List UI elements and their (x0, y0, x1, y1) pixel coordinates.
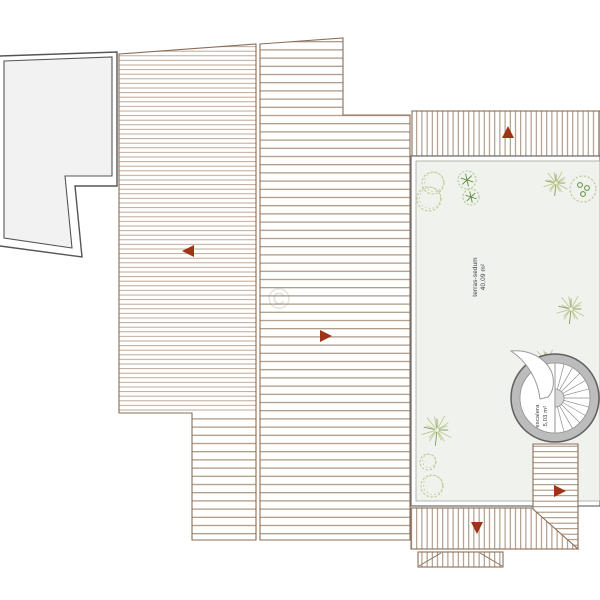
stair-label-area: 5,03 m² (543, 406, 549, 427)
plot-outline-inner (4, 57, 112, 248)
plot-outline (0, 52, 117, 257)
roof-plan-drawing: © (0, 0, 600, 600)
stair-label-name: escalera (535, 404, 541, 428)
roof-left (119, 44, 256, 540)
roof-center (260, 38, 410, 540)
roof-dormer (418, 552, 503, 567)
terrace-label-area: 40,09 m² (480, 264, 487, 290)
plan-canvas: © (0, 0, 600, 600)
terrace-label-name: terras-sedum (472, 257, 479, 297)
